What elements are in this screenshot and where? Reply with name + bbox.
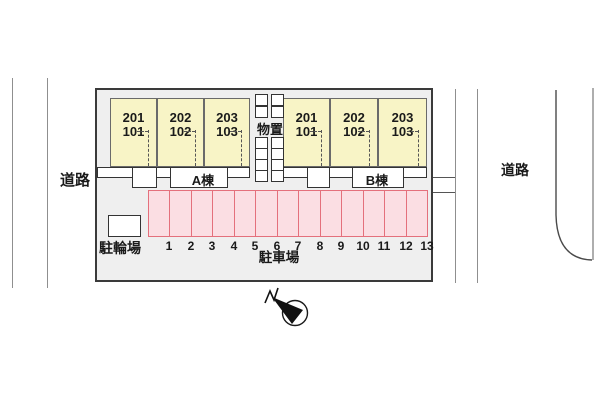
- parking-space-number: 2: [181, 239, 201, 253]
- parking-space: [341, 190, 364, 237]
- parking-space-number: 13: [417, 239, 437, 253]
- parking-space-number: 9: [331, 239, 351, 253]
- parking-space-number: 11: [374, 239, 394, 253]
- stair-dashed-line-horizontal: [230, 131, 241, 132]
- parking-space: [363, 190, 385, 237]
- room-lower-number: 102: [170, 125, 192, 139]
- road-far-right-curb: [556, 90, 592, 260]
- room-lower-number: 103: [216, 125, 238, 139]
- parking-space-number: 6: [267, 239, 287, 253]
- room-cell: 203103: [378, 98, 427, 167]
- parking-space-number: 3: [202, 239, 222, 253]
- storage-unit-cell: [271, 170, 284, 182]
- room-upper-number: 203: [392, 111, 414, 125]
- parking-space: [212, 190, 235, 237]
- stair-dashed-line-vertical: [418, 130, 419, 166]
- stair-dashed-line-horizontal: [184, 131, 195, 132]
- room-lower-number: 101: [123, 125, 145, 139]
- stair-dashed-line-horizontal: [407, 131, 418, 132]
- stair-dashed-line-vertical: [241, 130, 242, 166]
- stair-dashed-line-horizontal: [310, 131, 321, 132]
- compass-icon: [265, 288, 308, 326]
- parking-space-number: 10: [353, 239, 373, 253]
- room-cell: 203103: [204, 98, 250, 167]
- parking-space: [320, 190, 342, 237]
- stair-dashed-line-vertical: [195, 130, 196, 166]
- parking-space-number: 1: [159, 239, 179, 253]
- room-cell: 202102: [157, 98, 204, 167]
- stair-dashed-line-vertical: [148, 130, 149, 166]
- parking-space-number: 5: [245, 239, 265, 253]
- parking-space-number: 4: [224, 239, 244, 253]
- parking-space-number: 8: [310, 239, 330, 253]
- room-upper-number: 201: [296, 111, 318, 125]
- room-upper-number: 202: [170, 111, 192, 125]
- room-cell: 202102: [330, 98, 378, 167]
- parking-space: [169, 190, 192, 237]
- parking-space: [406, 190, 428, 237]
- room-upper-number: 202: [343, 111, 365, 125]
- storage-unit-cell: [271, 106, 284, 118]
- room-lower-number: 103: [392, 125, 414, 139]
- stair-dashed-line-vertical: [369, 130, 370, 166]
- stair-dashed-line-vertical: [321, 130, 322, 166]
- parking-space: [298, 190, 321, 237]
- parking-space: [277, 190, 299, 237]
- storage-unit-cell: [255, 94, 268, 106]
- stair-dashed-line-horizontal: [358, 131, 369, 132]
- room-cell: 201101: [283, 98, 330, 167]
- room-lower-number: 101: [296, 125, 318, 139]
- parking-space-number: 7: [288, 239, 308, 253]
- parking-space: [384, 190, 407, 237]
- room-upper-number: 203: [216, 111, 238, 125]
- room-lower-number: 102: [343, 125, 365, 139]
- parking-space: [234, 190, 256, 237]
- storage-unit-cell: [255, 106, 268, 118]
- storage-unit-cell: [255, 170, 268, 182]
- site-plan: 道路 道路 A棟 B棟 物置 駐輪場 駐車場 20110120210220310…: [0, 0, 600, 400]
- room-cell: 201101: [110, 98, 157, 167]
- parking-space: [191, 190, 213, 237]
- storage-unit-cell: [271, 94, 284, 106]
- room-upper-number: 201: [123, 111, 145, 125]
- parking-space-number: 12: [396, 239, 416, 253]
- stair-dashed-line-horizontal: [137, 131, 148, 132]
- parking-space: [148, 190, 170, 237]
- parking-space: [255, 190, 278, 237]
